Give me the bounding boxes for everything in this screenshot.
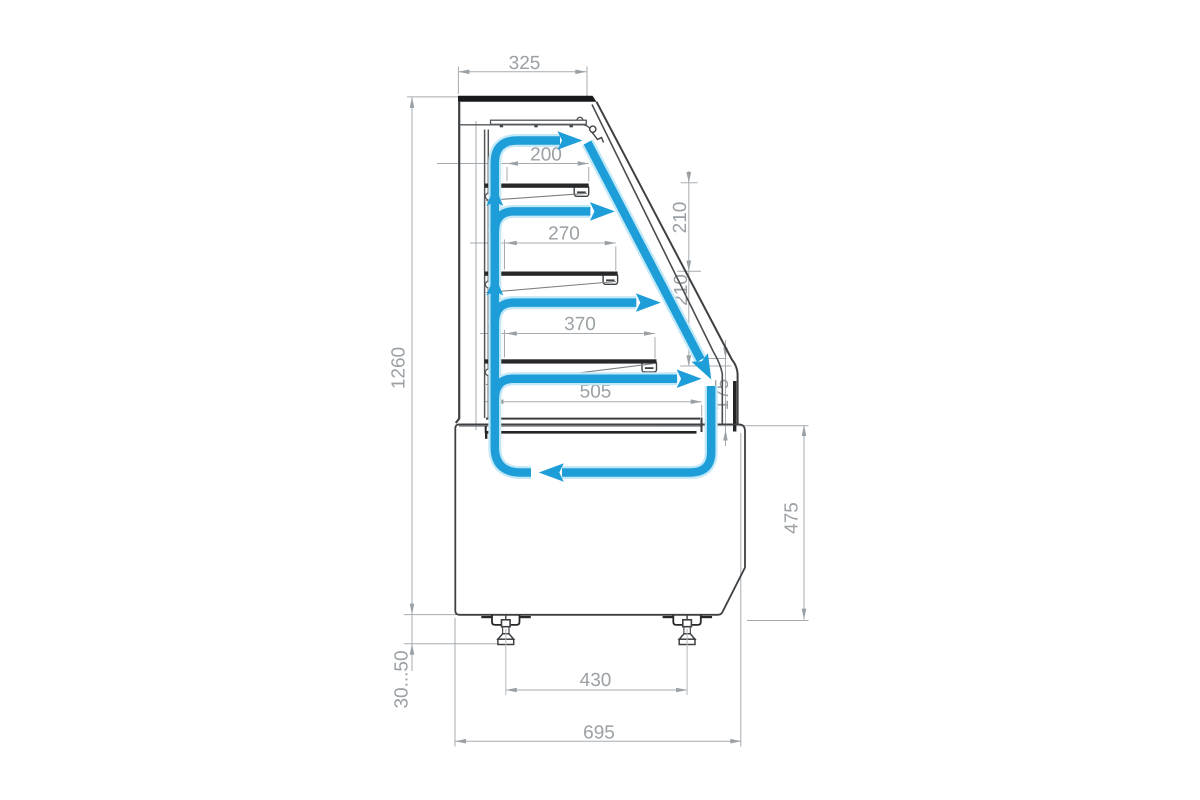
svg-text:30...50: 30...50 [392,650,413,708]
svg-text:1260: 1260 [389,347,410,389]
svg-text:475: 475 [782,502,803,534]
svg-text:430: 430 [580,670,612,691]
svg-text:370: 370 [564,314,596,335]
svg-text:695: 695 [583,723,615,744]
svg-text:325: 325 [509,53,541,74]
svg-text:200: 200 [530,145,562,166]
svg-text:210: 210 [670,202,691,234]
svg-text:270: 270 [548,224,580,245]
